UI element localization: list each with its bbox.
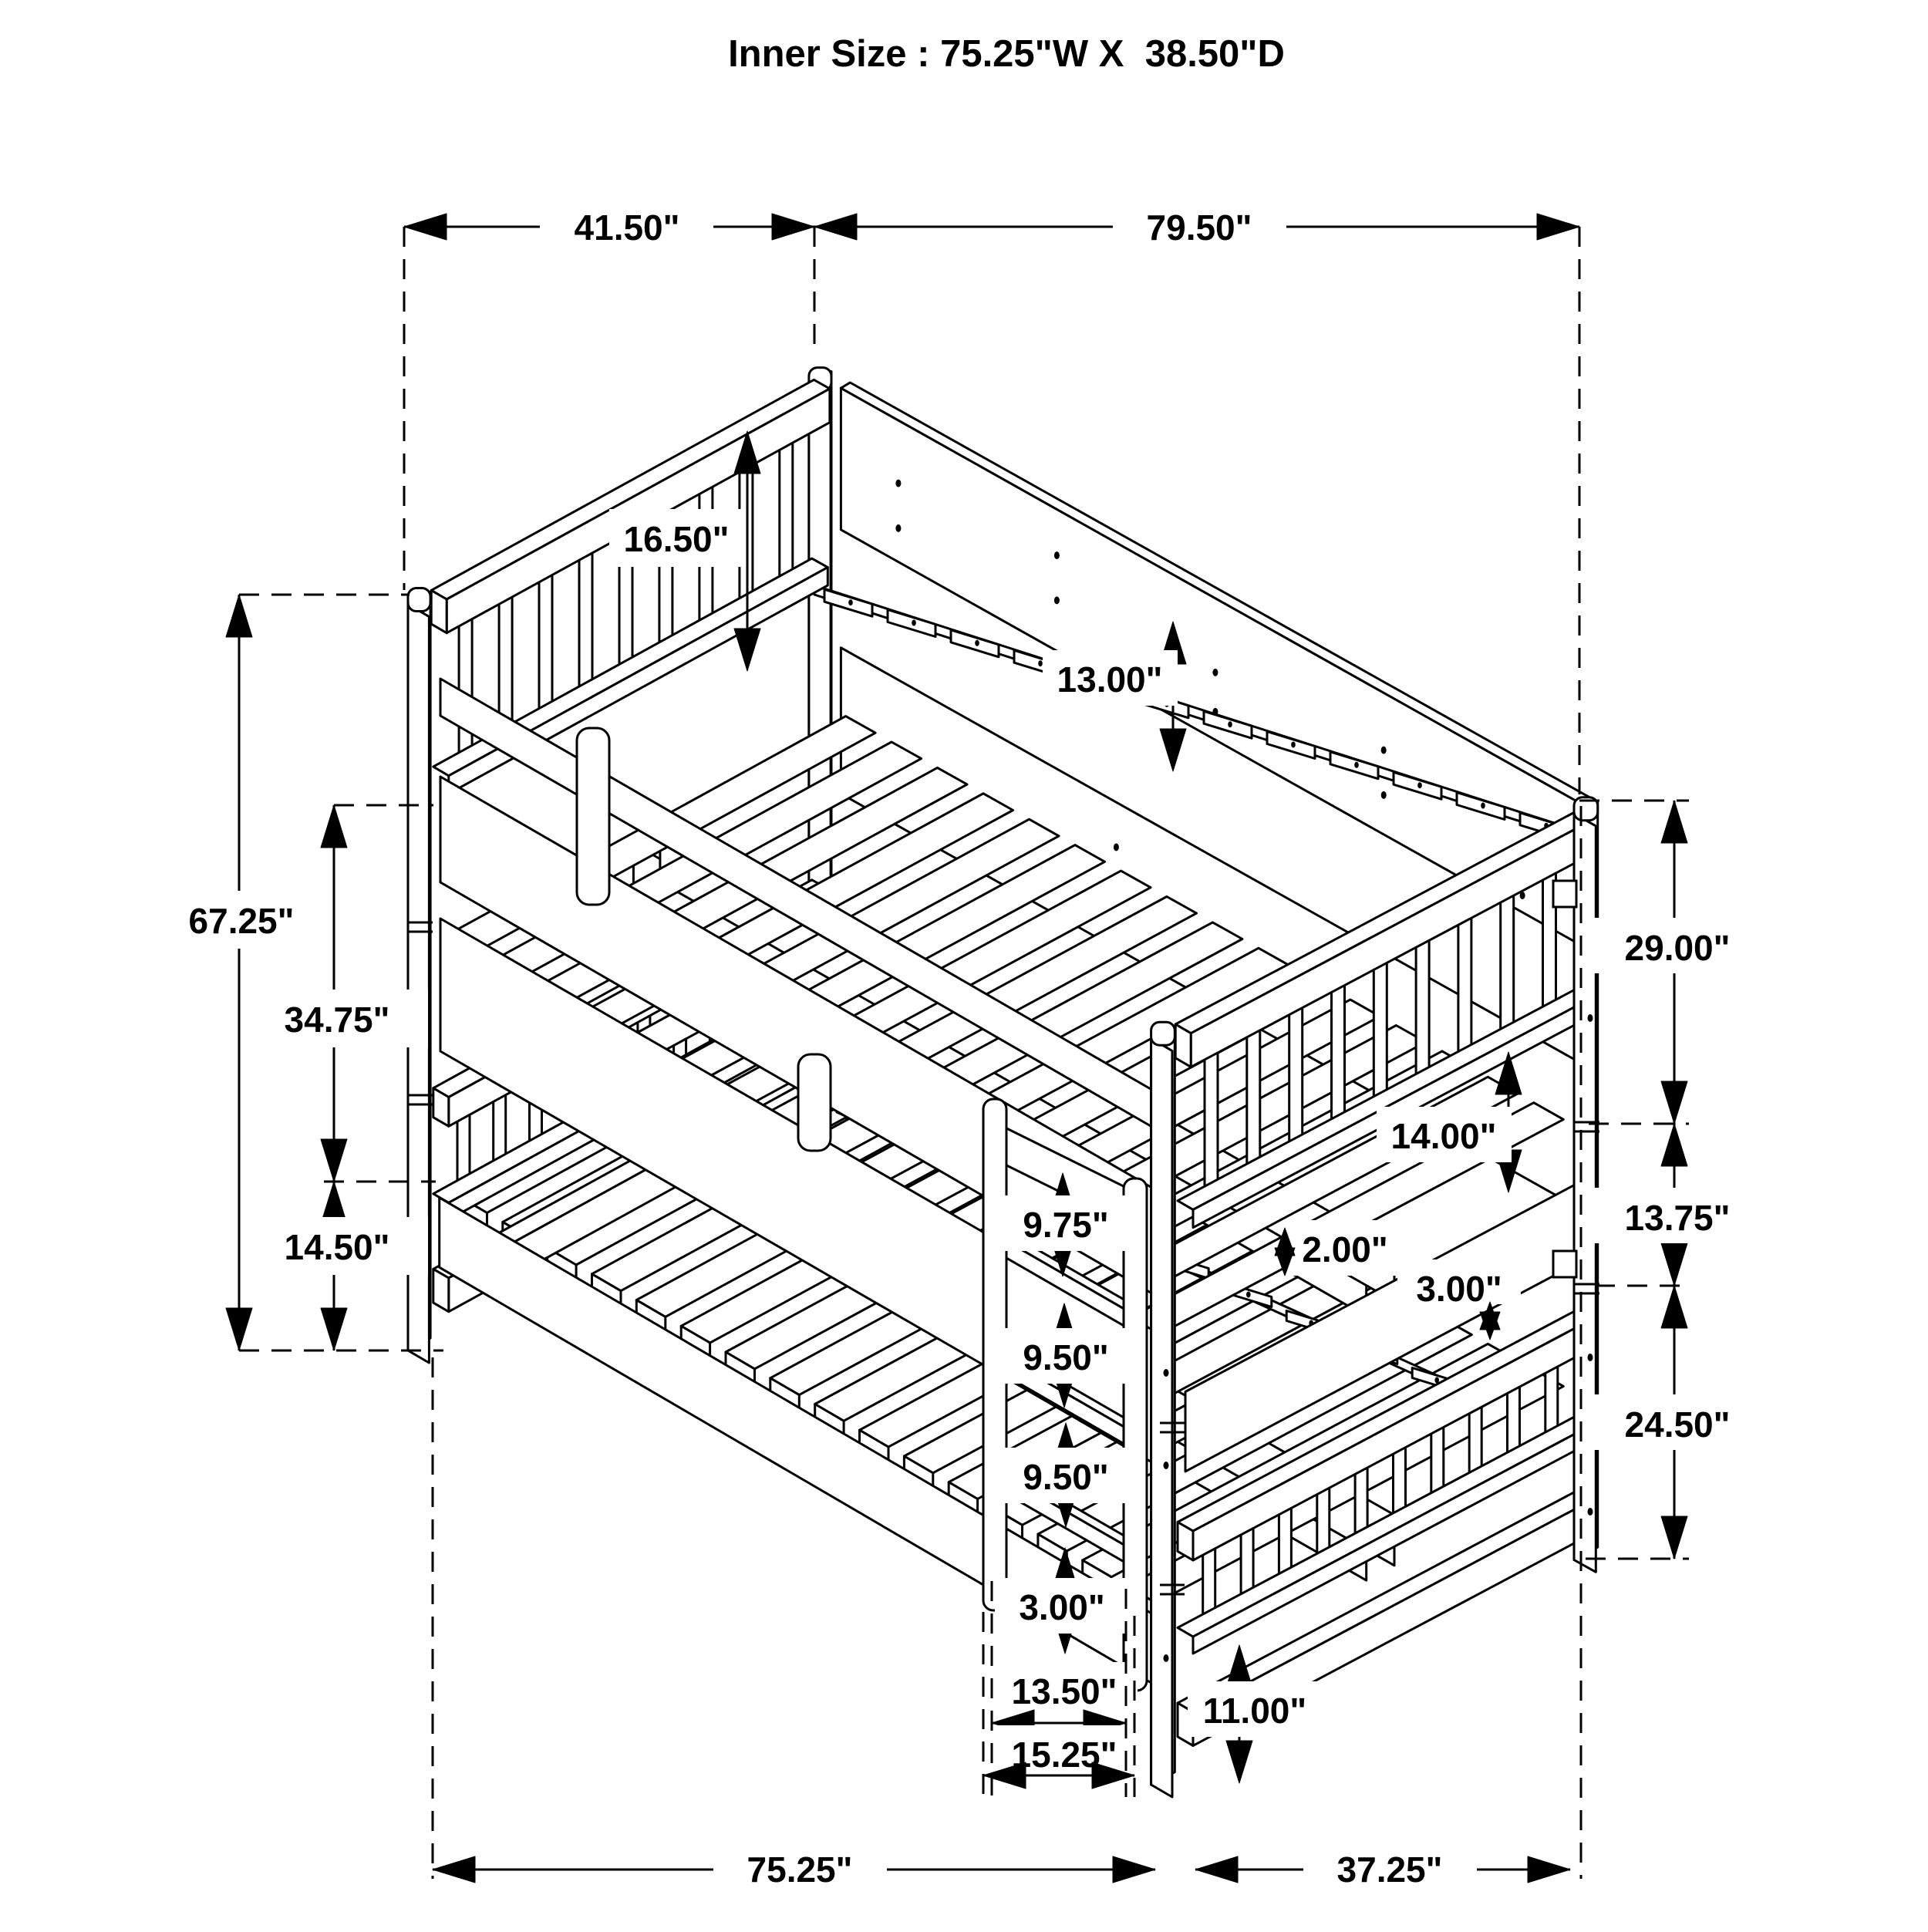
svg-text:9.50": 9.50" <box>1023 1337 1108 1377</box>
svg-text:37.25": 37.25" <box>1337 1849 1443 1890</box>
svg-text:13.50": 13.50" <box>1012 1671 1117 1711</box>
svg-text:Inner Size : 75.25"W X 38.50": Inner Size : 75.25"W X 38.50"D <box>728 33 1285 75</box>
svg-text:13.75": 13.75" <box>1625 1198 1731 1238</box>
svg-text:3.00": 3.00" <box>1019 1587 1104 1627</box>
svg-text:79.50": 79.50" <box>1147 207 1252 248</box>
svg-text:11.00": 11.00" <box>1203 1691 1306 1731</box>
svg-text:14.00": 14.00" <box>1391 1116 1497 1156</box>
svg-text:41.50": 41.50" <box>575 207 680 248</box>
svg-text:2.00": 2.00" <box>1302 1229 1387 1269</box>
svg-text:13.00": 13.00" <box>1057 659 1163 700</box>
svg-text:14.50": 14.50" <box>285 1227 390 1267</box>
svg-text:24.50": 24.50" <box>1625 1404 1731 1445</box>
svg-text:9.50": 9.50" <box>1023 1457 1108 1497</box>
svg-text:29.00": 29.00" <box>1625 928 1731 968</box>
svg-text:9.75": 9.75" <box>1023 1205 1108 1245</box>
svg-text:3.00": 3.00" <box>1416 1269 1502 1309</box>
svg-text:16.50": 16.50" <box>624 519 730 559</box>
svg-text:34.75": 34.75" <box>285 1000 390 1040</box>
svg-text:75.25": 75.25" <box>747 1849 853 1890</box>
svg-text:67.25": 67.25" <box>189 901 295 941</box>
